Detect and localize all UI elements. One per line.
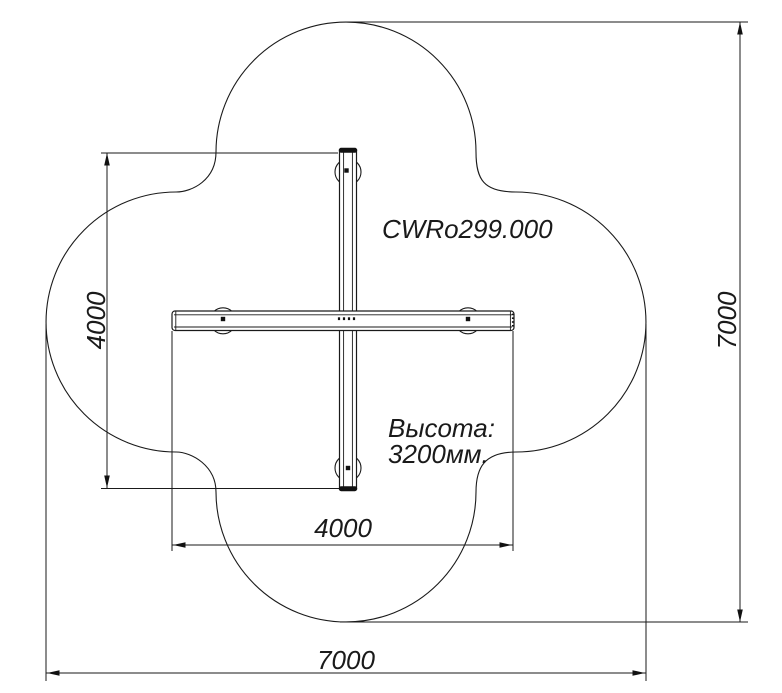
arrowhead-down — [104, 476, 110, 489]
technical-drawing-canvas: 4000 4000 7000 7000 — [0, 0, 782, 693]
center-bolt-dot — [348, 317, 350, 320]
arrowhead-left — [173, 542, 186, 548]
end-tick — [512, 317, 514, 319]
dim-label-zone-height-7000: 7000 — [712, 291, 742, 349]
bolt-dot — [466, 317, 470, 321]
arrowhead-up — [104, 153, 110, 166]
bolt-dot — [344, 168, 348, 172]
end-tick — [512, 321, 514, 323]
dim-label-horizontal-4000: 4000 — [314, 513, 372, 543]
arrowhead-right — [500, 542, 513, 548]
drawing-sheet: 4000 4000 7000 7000 — [0, 0, 782, 693]
beam-end-cap-top — [339, 148, 357, 153]
bolt-dot — [221, 317, 225, 321]
arrowhead-left — [47, 670, 60, 676]
arrowhead-down — [737, 610, 743, 623]
bolt-dot — [346, 466, 350, 470]
dim-label-zone-width-7000: 7000 — [317, 645, 375, 675]
center-bolt-dot — [338, 317, 340, 320]
horizontal-beam — [172, 308, 514, 334]
center-bolt-dot — [343, 317, 345, 320]
beam-end-cap-bottom — [339, 486, 357, 491]
dim-label-vertical-4000: 4000 — [81, 291, 111, 349]
arrowhead-right — [633, 670, 646, 676]
center-bolt-dot — [353, 317, 355, 320]
arrowhead-up — [737, 22, 743, 35]
height-note-line2: 3200мм. — [388, 439, 489, 469]
part-number-label: CWRo299.000 — [382, 214, 553, 244]
end-tick — [512, 314, 514, 316]
end-tick — [512, 325, 514, 327]
